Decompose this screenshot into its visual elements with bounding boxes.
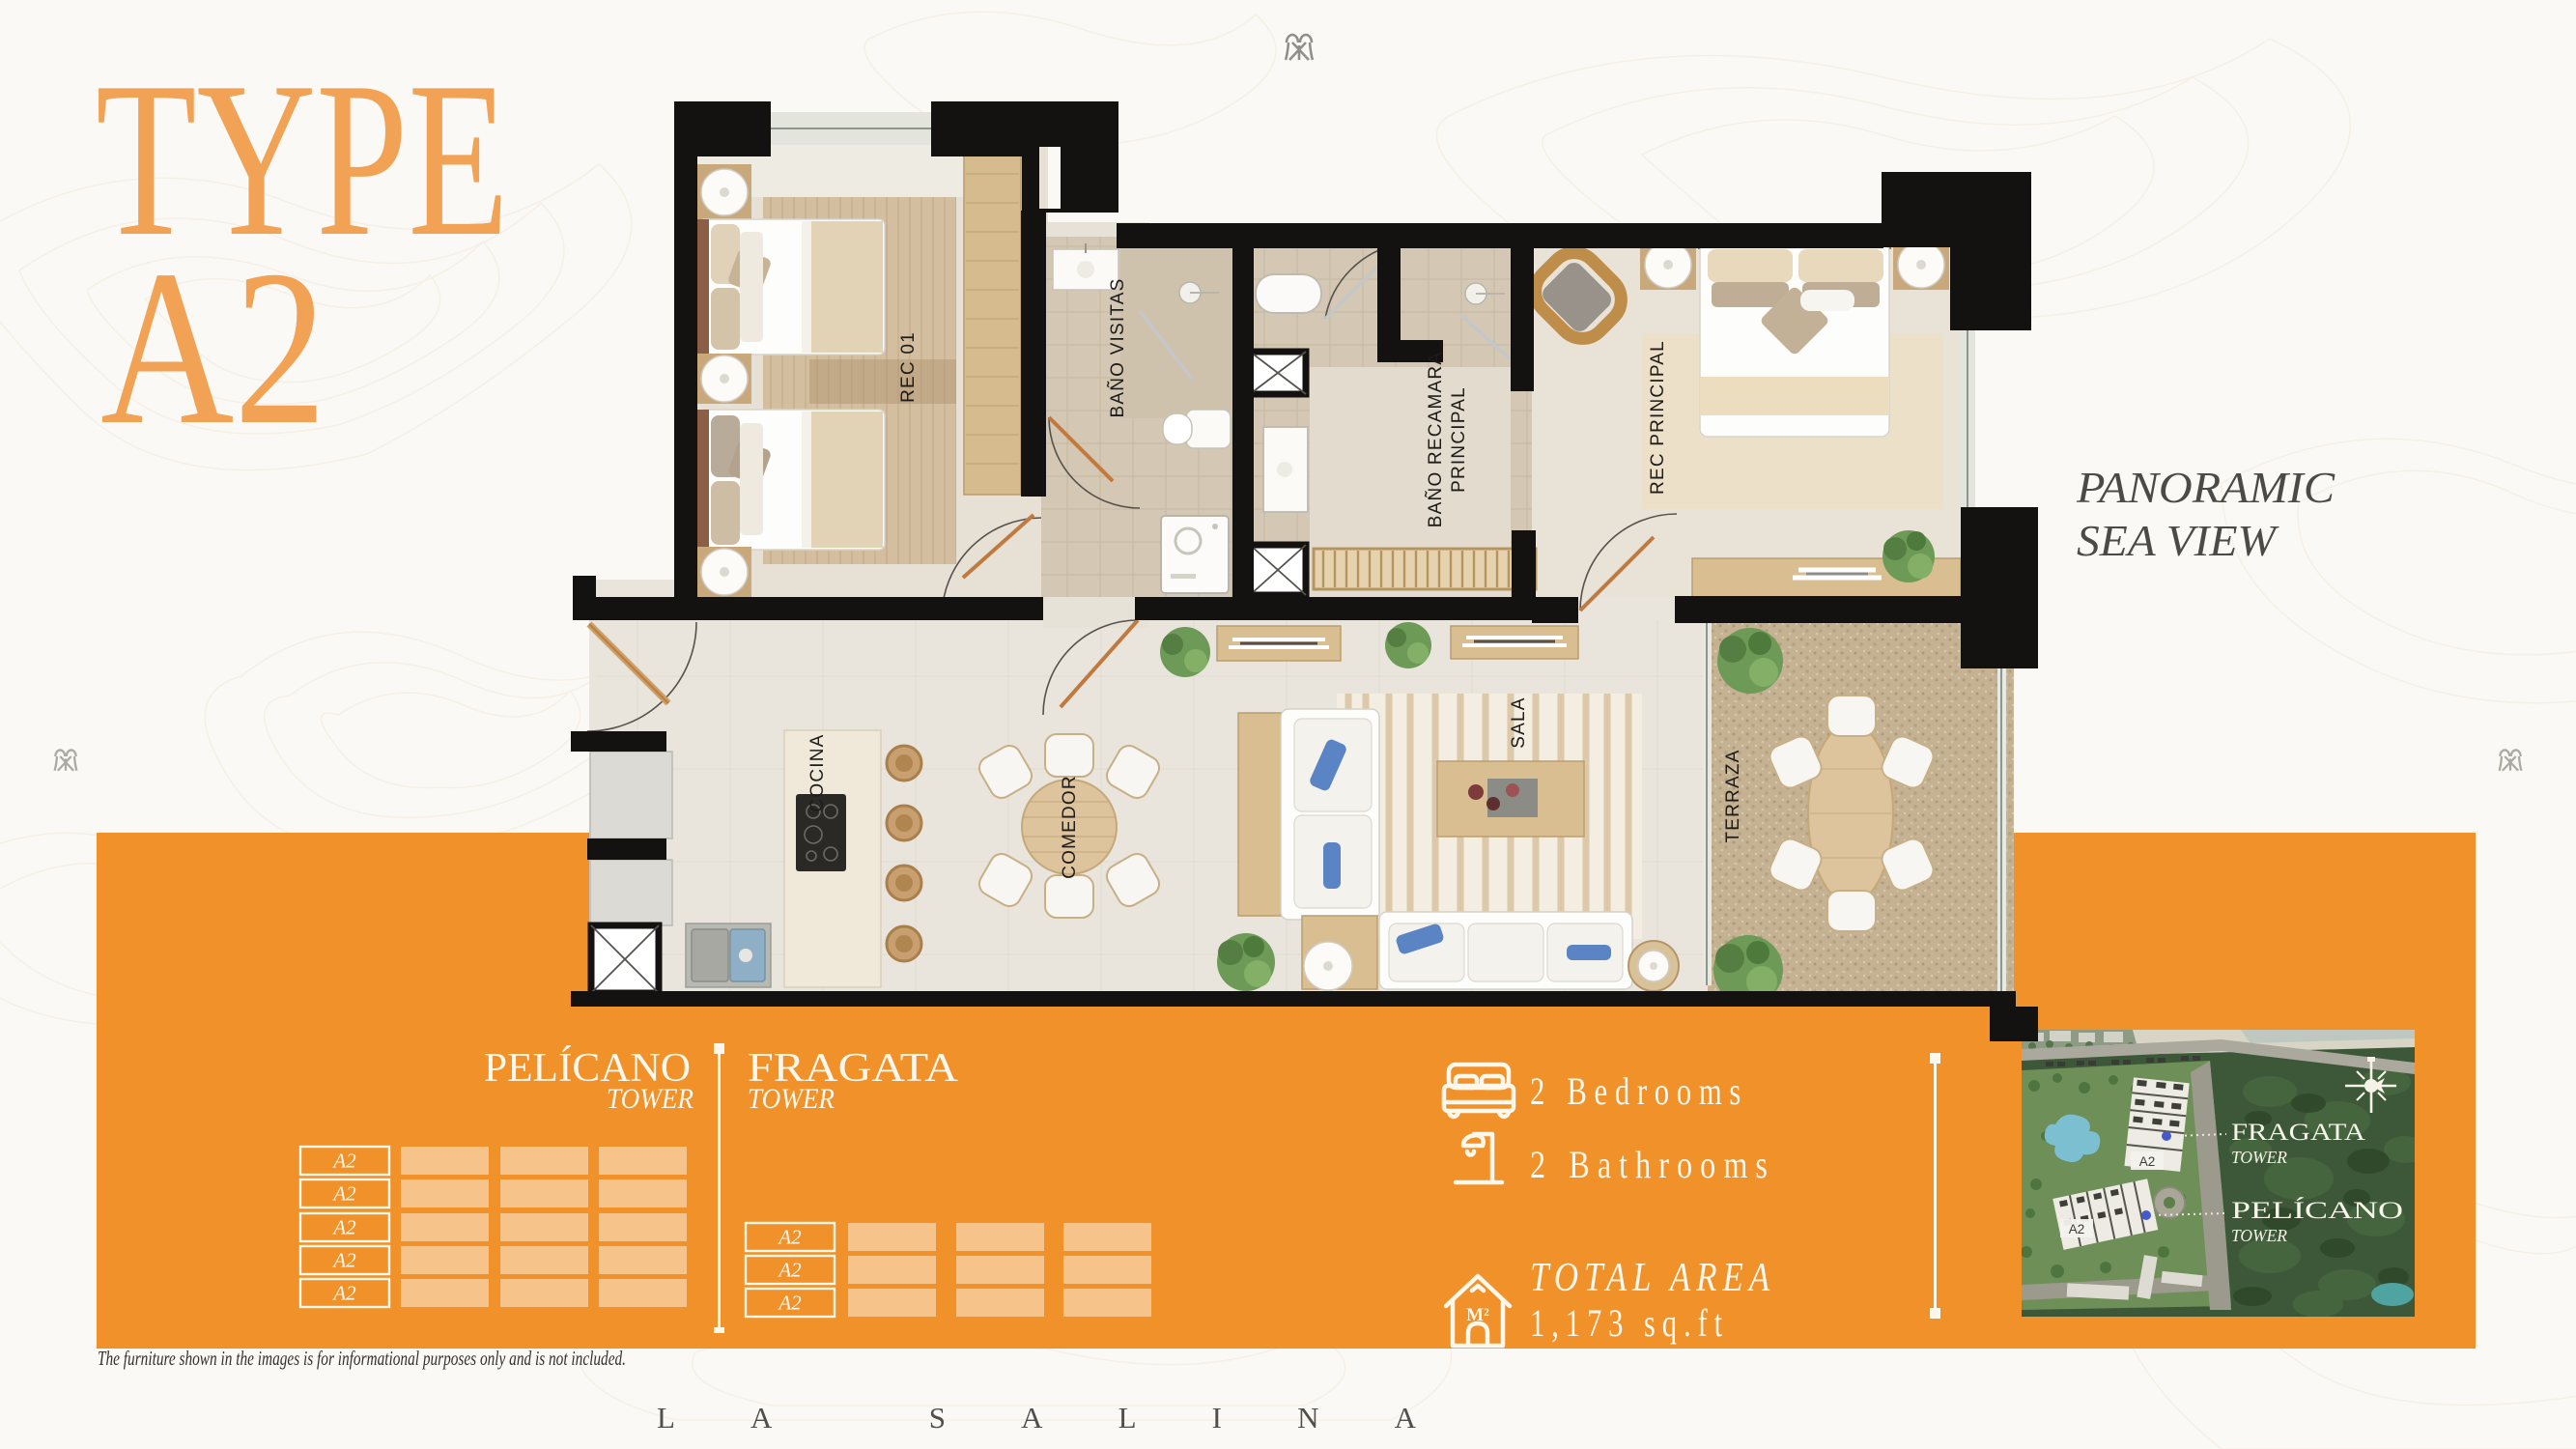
svg-text:PRINCIPAL: PRINCIPAL xyxy=(1449,386,1469,493)
svg-text:A2: A2 xyxy=(2139,1154,2156,1169)
svg-text:A2: A2 xyxy=(777,1259,802,1282)
svg-text:TOWER: TOWER xyxy=(748,1083,835,1115)
svg-text:A2: A2 xyxy=(331,1216,356,1239)
svg-text:A2: A2 xyxy=(100,224,326,464)
svg-text:2 Bathrooms: 2 Bathrooms xyxy=(1530,1143,1775,1186)
svg-text:A2: A2 xyxy=(331,1150,356,1173)
svg-text:LA SALINA: LA SALINA xyxy=(657,1401,1417,1435)
svg-text:TOWER: TOWER xyxy=(607,1083,694,1115)
svg-text:REC PRINCIPAL: REC PRINCIPAL xyxy=(1648,340,1668,495)
svg-text:A2: A2 xyxy=(777,1226,802,1249)
svg-text:A2: A2 xyxy=(2069,1222,2085,1236)
svg-text:BAÑO VISITAS: BAÑO VISITAS xyxy=(1107,278,1128,418)
svg-text:FRAGATA: FRAGATA xyxy=(2231,1120,2365,1146)
svg-text:TOTAL AREA: TOTAL AREA xyxy=(1530,1256,1775,1300)
svg-text:TERRAZA: TERRAZA xyxy=(1723,749,1743,842)
svg-text:SEA VIEW: SEA VIEW xyxy=(2077,516,2279,565)
svg-text:PANORAMIC: PANORAMIC xyxy=(2076,463,2335,512)
svg-text:A2: A2 xyxy=(331,1249,356,1272)
svg-text:COCINA: COCINA xyxy=(807,733,828,811)
svg-text:REC 01: REC 01 xyxy=(898,331,919,403)
svg-text:The furniture shown in the ima: The furniture shown in the images is for… xyxy=(98,1347,626,1370)
svg-text:M²: M² xyxy=(1466,1305,1489,1325)
svg-text:PELÍCANO: PELÍCANO xyxy=(2231,1197,2403,1224)
svg-text:SALA: SALA xyxy=(1509,696,1529,748)
svg-text:TOWER: TOWER xyxy=(2231,1148,2287,1167)
svg-text:TOWER: TOWER xyxy=(2231,1226,2287,1245)
svg-text:1,173 sq.ft: 1,173 sq.ft xyxy=(1530,1301,1729,1345)
svg-text:A2: A2 xyxy=(331,1282,356,1305)
svg-text:2 Bedrooms: 2 Bedrooms xyxy=(1530,1069,1748,1113)
svg-text:A2: A2 xyxy=(331,1182,356,1206)
svg-text:A2: A2 xyxy=(777,1292,802,1315)
svg-text:BAÑO RECAMARA: BAÑO RECAMARA xyxy=(1425,352,1446,527)
svg-text:COMEDOR: COMEDOR xyxy=(1060,775,1080,879)
